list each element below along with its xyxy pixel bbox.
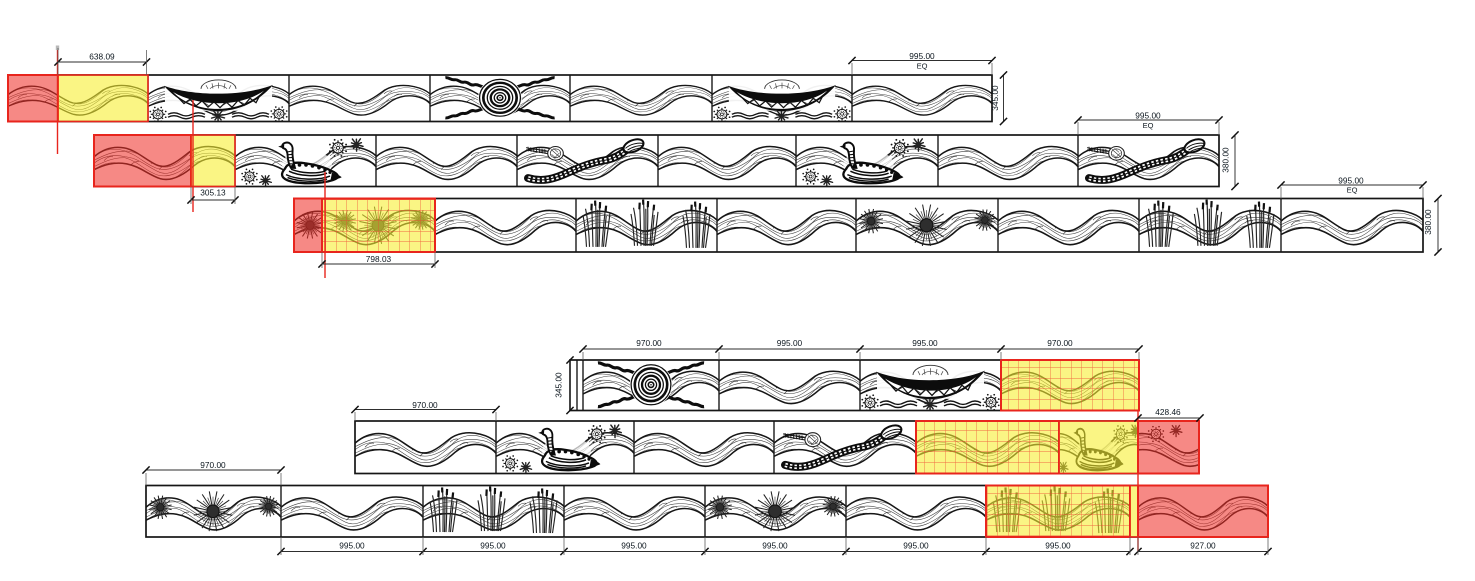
svg-text:995.00: 995.00 xyxy=(339,541,365,551)
svg-text:927.00: 927.00 xyxy=(1190,541,1216,551)
svg-text:345.00: 345.00 xyxy=(554,372,564,398)
svg-text:380.00: 380.00 xyxy=(1423,209,1433,235)
svg-text:995.00: 995.00 xyxy=(762,541,788,551)
svg-text:995.00: 995.00 xyxy=(777,338,803,348)
svg-text:995.00: 995.00 xyxy=(1045,541,1071,551)
svg-text:970.00: 970.00 xyxy=(636,338,662,348)
svg-text:EQ: EQ xyxy=(1143,121,1154,130)
svg-text:995.00: 995.00 xyxy=(903,541,929,551)
svg-text:995.00: 995.00 xyxy=(1135,111,1161,121)
svg-text:EQ: EQ xyxy=(917,62,928,71)
svg-text:380.00: 380.00 xyxy=(1221,147,1231,173)
svg-text:995.00: 995.00 xyxy=(480,541,506,551)
svg-text:638.09: 638.09 xyxy=(89,52,115,62)
svg-text:995.00: 995.00 xyxy=(912,338,938,348)
svg-text:345.00: 345.00 xyxy=(990,85,1000,111)
svg-text:428.46: 428.46 xyxy=(1155,407,1181,417)
svg-text:EQ: EQ xyxy=(1347,186,1358,195)
svg-text:995.00: 995.00 xyxy=(621,541,647,551)
svg-text:798.03: 798.03 xyxy=(366,254,392,264)
svg-text:305.13: 305.13 xyxy=(200,187,226,197)
svg-text:970.00: 970.00 xyxy=(412,400,438,410)
svg-text:970.00: 970.00 xyxy=(200,460,226,470)
svg-text:995.00: 995.00 xyxy=(1338,175,1364,185)
svg-text:970.00: 970.00 xyxy=(1047,338,1073,348)
svg-text:995.00: 995.00 xyxy=(909,51,935,61)
